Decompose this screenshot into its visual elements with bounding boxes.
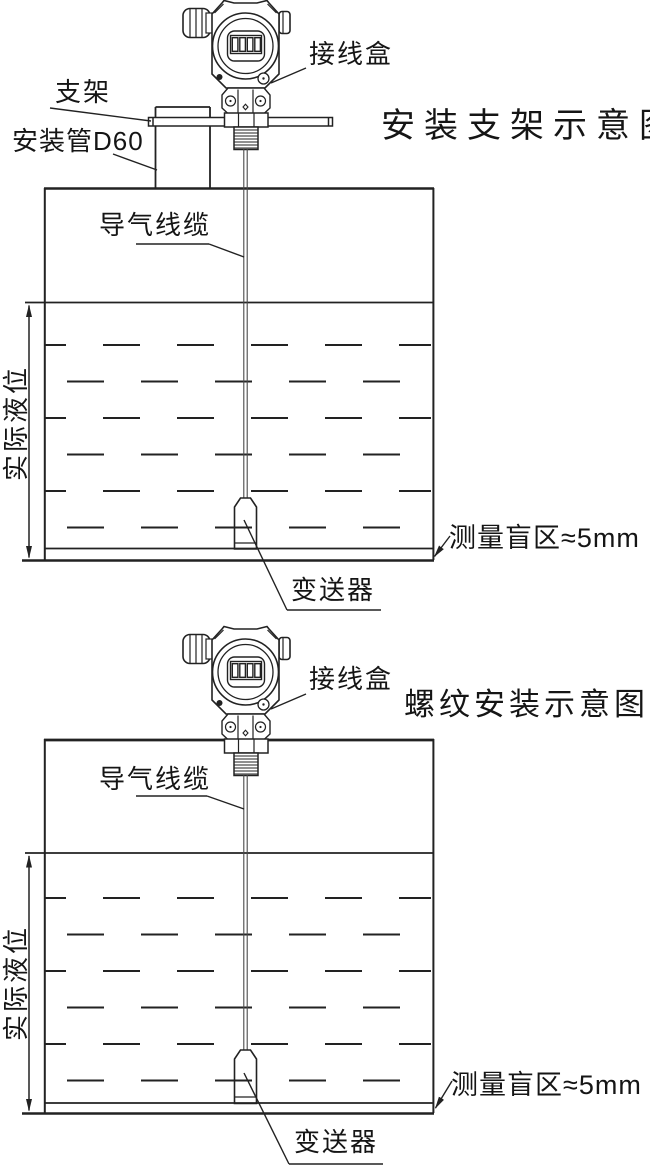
blind-zone-arrow [436, 1081, 453, 1108]
junction-box-label: 接线盒 [309, 40, 393, 69]
blind-zone-label: 测量盲区≈5mm [449, 524, 640, 554]
tank [22, 739, 434, 1114]
mounting-pipe-label: 安装管D60 [12, 127, 144, 156]
air-guide-cable [244, 149, 247, 498]
bracket-leader [50, 108, 151, 121]
actual-level-label: 实际液位 [2, 925, 30, 1041]
air-cable-leader [209, 244, 244, 257]
actual-level-label: 实际液位 [2, 365, 30, 481]
junction-box-label: 接线盒 [309, 665, 393, 694]
transmitter-leader [244, 520, 287, 610]
thread-installation-diagram [22, 627, 452, 1165]
transmitter-assembly [183, 627, 290, 776]
blind-zone-label: 测量盲区≈5mm [451, 1071, 642, 1101]
diagram-title-bracket: 安装支架示意图 [381, 108, 650, 145]
transmitter-label: 变送器 [294, 1128, 378, 1157]
diagram-title-thread: 螺纹安装示意图 [404, 688, 649, 722]
tank [22, 188, 434, 561]
installation-diagram-page: 安装支架示意图 接线盒 支架 安装管D60 导气线缆 实际液位 测量盲区≈5mm… [0, 0, 650, 1171]
blind-zone-arrow [435, 536, 451, 557]
transmitter-label: 变送器 [291, 576, 375, 605]
pipe-leader [113, 154, 157, 170]
air-cable-leader [207, 796, 244, 809]
bracket-label: 支架 [55, 78, 111, 107]
transmitter-leader [244, 1073, 289, 1164]
liquid-dashes [45, 345, 431, 528]
air-cable-label: 导气线缆 [99, 211, 211, 240]
air-cable-label: 导气线缆 [99, 765, 211, 794]
air-guide-cable [244, 775, 247, 1050]
transmitter-assembly [183, 1, 290, 150]
